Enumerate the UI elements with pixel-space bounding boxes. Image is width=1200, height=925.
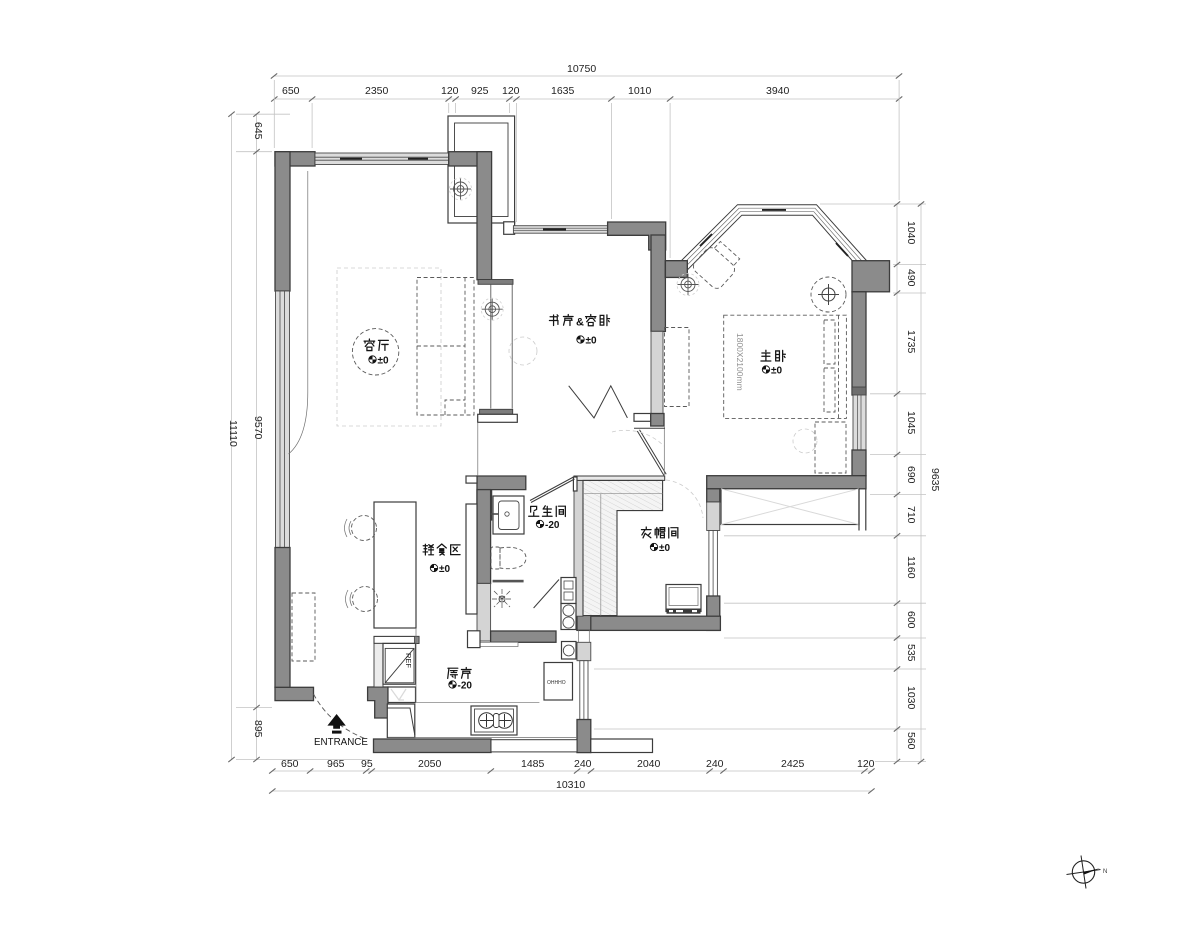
svg-text:1030: 1030 [905,686,917,710]
svg-text:3940: 3940 [766,85,790,97]
svg-text:120: 120 [502,85,520,97]
svg-text:710: 710 [905,506,917,524]
svg-text:REF: REF [404,653,413,668]
svg-text:490: 490 [905,269,917,287]
svg-text:690: 690 [905,466,917,484]
svg-text:895: 895 [252,720,264,738]
svg-text:2350: 2350 [365,85,389,97]
svg-text:1160: 1160 [905,556,917,579]
svg-text:2040: 2040 [637,758,661,770]
svg-text:ENTRANCE: ENTRANCE [314,737,368,748]
svg-text:10310: 10310 [556,779,585,791]
svg-text:535: 535 [905,644,917,662]
svg-text:95: 95 [361,758,373,770]
svg-text:±0: ±0 [771,366,782,377]
svg-text:1040: 1040 [905,221,917,245]
svg-text:2050: 2050 [418,758,442,770]
svg-text:9570: 9570 [252,416,264,440]
svg-text:10750: 10750 [567,63,596,75]
svg-text:±0: ±0 [439,564,450,575]
svg-text:560: 560 [905,732,917,750]
svg-text:1045: 1045 [905,411,917,435]
svg-text:240: 240 [574,758,592,770]
svg-text:±0: ±0 [659,543,670,554]
svg-text:240: 240 [706,758,724,770]
svg-text:N: N [1103,869,1107,875]
svg-text:±0: ±0 [378,356,389,367]
svg-text:-20: -20 [458,681,473,692]
svg-text:925: 925 [471,85,489,97]
svg-text:1010: 1010 [628,85,652,97]
svg-text:650: 650 [281,758,299,770]
svg-text:600: 600 [905,611,917,629]
svg-text:-20: -20 [545,520,560,531]
svg-text:120: 120 [441,85,459,97]
svg-text:1485: 1485 [521,758,545,770]
svg-text:1735: 1735 [905,330,917,354]
svg-text:&: & [576,317,584,329]
svg-text:1800X2100mm: 1800X2100mm [735,333,745,391]
svg-text:2425: 2425 [781,758,805,770]
svg-text:120: 120 [857,758,875,770]
svg-text:±0: ±0 [586,336,597,347]
svg-text:11110: 11110 [227,420,239,447]
svg-text:650: 650 [282,85,300,97]
svg-text:965: 965 [327,758,345,770]
svg-text:9635: 9635 [929,468,941,492]
svg-text:1635: 1635 [551,85,575,97]
svg-text:645: 645 [252,122,264,140]
svg-text:OHHHO: OHHHO [547,680,566,686]
